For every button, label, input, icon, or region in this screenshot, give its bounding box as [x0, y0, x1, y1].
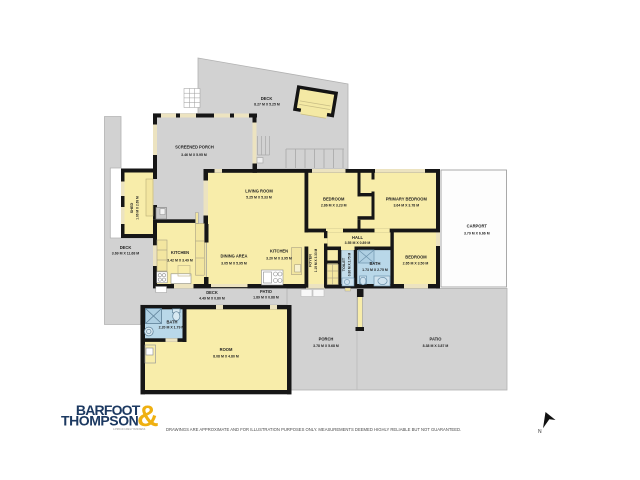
svg-text:N: N [538, 429, 542, 435]
svg-text:2.86 M X 3.23 M: 2.86 M X 3.23 M [321, 204, 347, 208]
svg-text:5.25 M X 5.33 M: 5.25 M X 5.33 M [246, 196, 272, 200]
svg-text:2.20 M X 1.79 M: 2.20 M X 1.79 M [159, 326, 185, 330]
svg-text:3.46 M X 5.95 M: 3.46 M X 5.95 M [181, 153, 207, 157]
svg-text:8.08 M X 4.80 M: 8.08 M X 4.80 M [213, 355, 239, 359]
svg-text:DECK: DECK [261, 96, 273, 101]
svg-text:3.69 M X 11.68 M: 3.69 M X 11.68 M [112, 252, 140, 256]
svg-text:1.66 M X 2.69 M: 1.66 M X 2.69 M [135, 196, 139, 220]
svg-text:A PROUD FAMILY BUSINESS: A PROUD FAMILY BUSINESS [113, 428, 146, 431]
svg-text:3.20 M X 3.95 M: 3.20 M X 3.95 M [266, 257, 292, 261]
svg-text:TOILET: TOILET [342, 257, 346, 271]
svg-text:SCREENED PORCH: SCREENED PORCH [175, 145, 214, 150]
svg-text:KITCHEN: KITCHEN [171, 250, 189, 255]
svg-text:PORCH: PORCH [319, 337, 334, 342]
svg-text:BEDROOM: BEDROOM [323, 197, 345, 202]
svg-text:HALL: HALL [352, 235, 363, 240]
svg-text:0.86 M X 2.75 M: 0.86 M X 2.75 M [347, 252, 351, 276]
svg-text:3.64 M X 3.78 M: 3.64 M X 3.78 M [393, 204, 419, 208]
svg-text:FOYER: FOYER [309, 254, 313, 267]
svg-text:BATH: BATH [369, 261, 380, 266]
svg-text:BEDROOM: BEDROOM [405, 255, 427, 260]
svg-text:3.05 M X 5.95 M: 3.05 M X 5.95 M [221, 262, 247, 266]
svg-text:DINING AREA: DINING AREA [221, 254, 248, 259]
svg-text:PRIMARY BEDROOM: PRIMARY BEDROOM [386, 197, 428, 202]
svg-text:3.42 M X 3.49 M: 3.42 M X 3.49 M [167, 259, 193, 263]
svg-text:DECK: DECK [120, 245, 132, 250]
svg-text:THOMPSON: THOMPSON [61, 412, 139, 428]
svg-text:2.65 M X 3.50 M: 2.65 M X 3.50 M [403, 262, 429, 266]
svg-text:PATIO: PATIO [260, 289, 273, 294]
svg-text:3.55 M X 0.89 M: 3.55 M X 0.89 M [345, 241, 371, 245]
svg-text:BATH: BATH [166, 320, 177, 325]
svg-text:8.27 M X 5.25 M: 8.27 M X 5.25 M [254, 103, 280, 107]
svg-text:1.89 M X 0.88 M: 1.89 M X 0.88 M [253, 296, 279, 300]
svg-text:PATIO: PATIO [430, 337, 443, 342]
svg-text:ROOM: ROOM [220, 347, 233, 352]
svg-text:3.78 M X 5.68 M: 3.78 M X 5.68 M [313, 344, 339, 348]
svg-text:1.73 M X 2.75 M: 1.73 M X 2.75 M [362, 268, 388, 272]
svg-text:8.38 M X 3.87 M: 8.38 M X 3.87 M [423, 344, 449, 348]
svg-text:LIVING ROOM: LIVING ROOM [245, 189, 273, 194]
svg-text:KITCHEN: KITCHEN [270, 249, 288, 254]
svg-text:DRAWINGS ARE APPROXIMATE AND F: DRAWINGS ARE APPROXIMATE AND FOR ILLUSTR… [166, 427, 461, 432]
svg-text:4.49 M X 0.80 M: 4.49 M X 0.80 M [199, 297, 225, 301]
svg-text:1.19 M X 3.33 M: 1.19 M X 3.33 M [314, 248, 318, 272]
svg-text:3.79 M X 6.66 M: 3.79 M X 6.66 M [464, 232, 490, 236]
svg-text:SHED: SHED [130, 202, 134, 213]
svg-text:DECK: DECK [206, 290, 218, 295]
svg-text:CARPORT: CARPORT [467, 224, 488, 229]
